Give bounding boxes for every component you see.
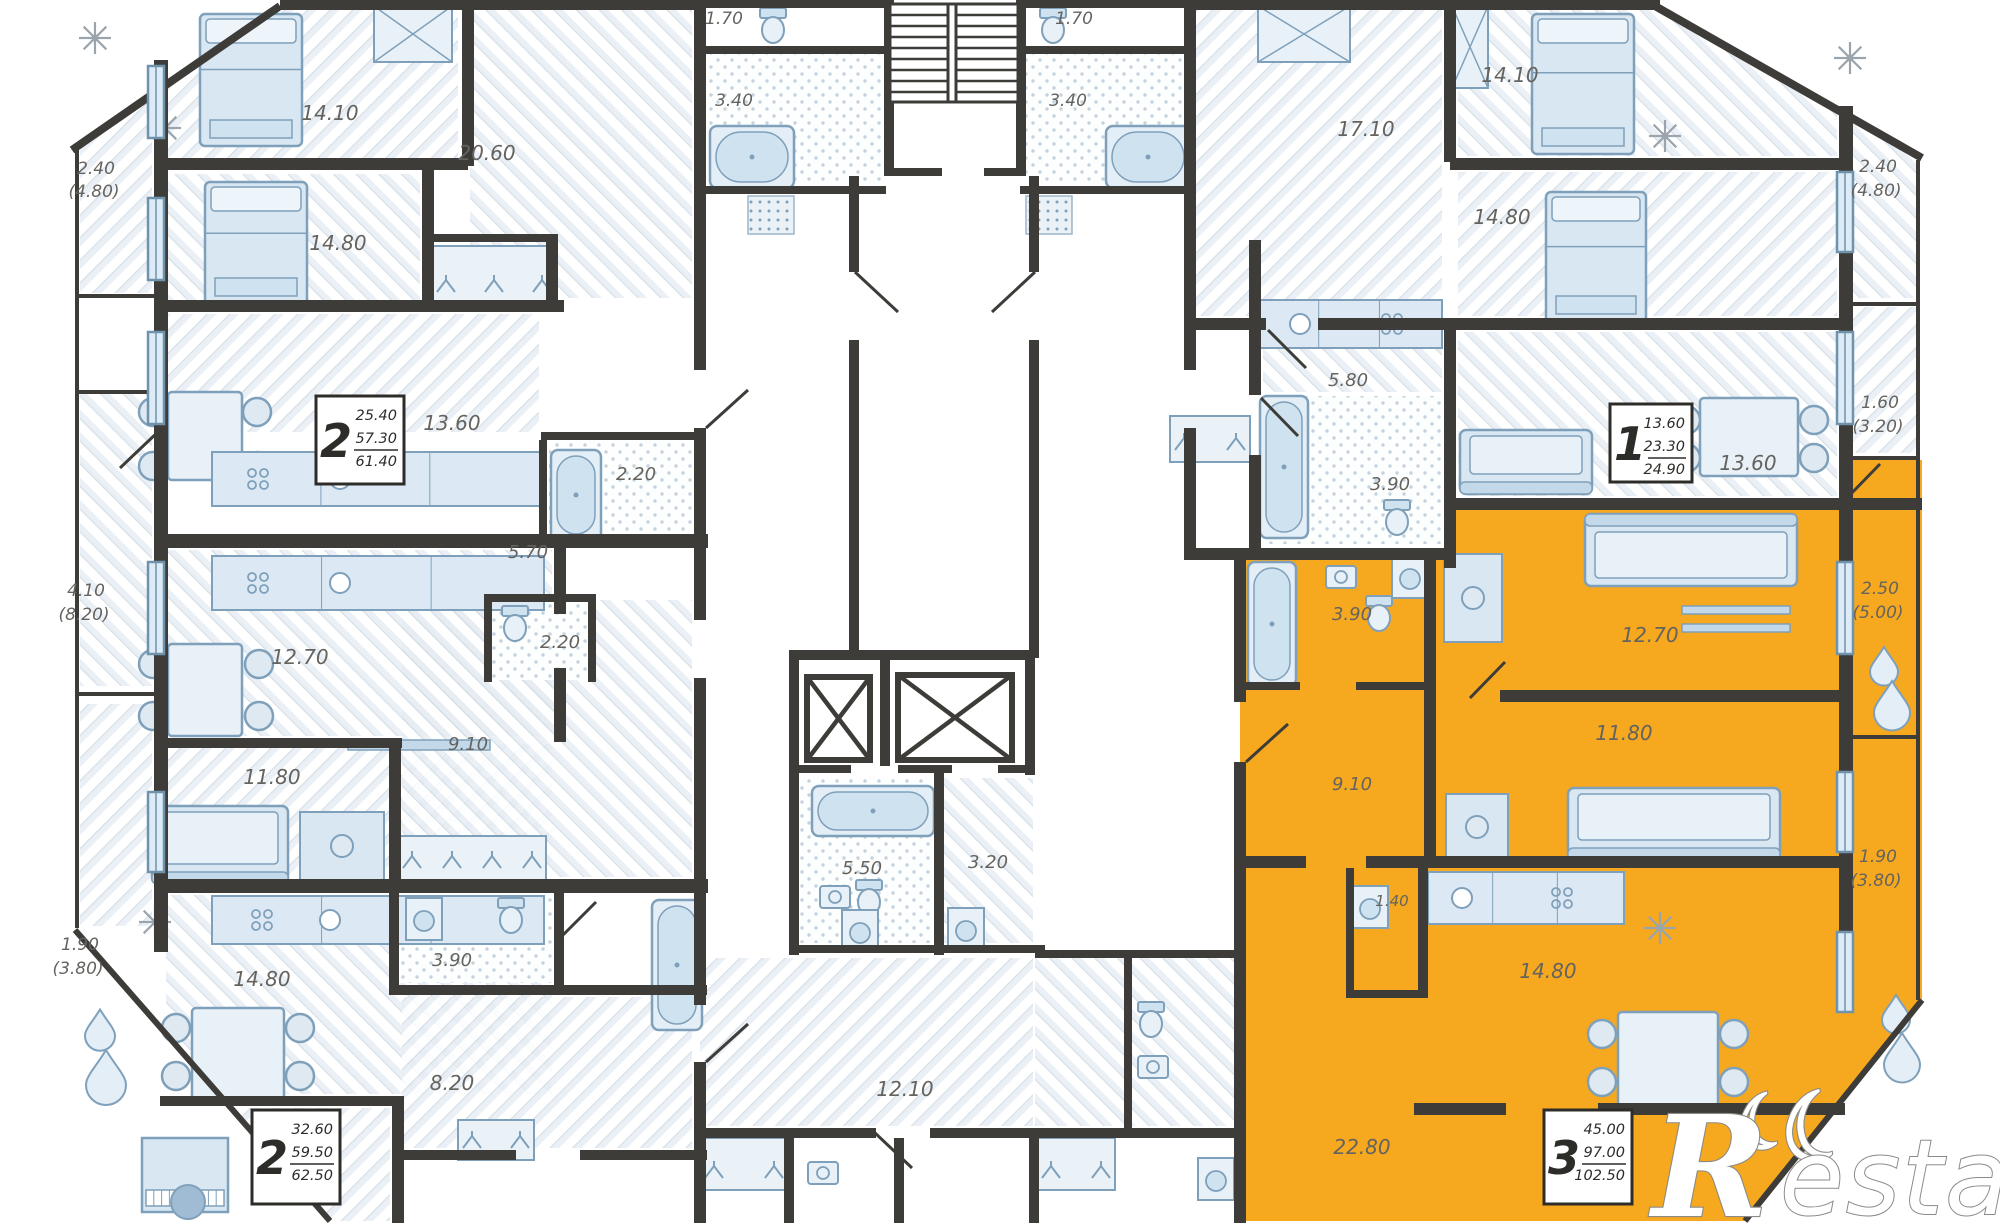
wall-segment <box>694 1062 706 1223</box>
wall-line <box>560 902 596 938</box>
room-dimension-label: 14.80 <box>1519 959 1576 983</box>
chair-icon <box>286 1062 314 1090</box>
room-dimension-label: 3.90 <box>432 950 472 971</box>
badge-room-count: 1 <box>1614 417 1646 471</box>
washbasin-icon <box>808 1162 838 1184</box>
round-table-icon <box>171 1185 205 1219</box>
toilet-icon <box>760 8 786 43</box>
wall-segment <box>934 773 944 955</box>
room-dimension-label: 14.80 <box>309 231 366 255</box>
wall-segment <box>1366 856 1845 868</box>
wall-segment <box>1500 690 1845 702</box>
room-dimension-label: 12.70 <box>271 645 328 669</box>
wall-segment <box>694 880 706 1005</box>
wall-segment <box>554 893 564 993</box>
room-bedroom-14-80-right <box>1458 172 1837 316</box>
room-dimension-label: (3.80) <box>1850 871 1901 891</box>
wall-segment <box>1026 0 1186 8</box>
chair-icon <box>286 1014 314 1042</box>
wall-segment <box>1020 46 1192 54</box>
room-dimension-label: 2.40 <box>77 159 115 179</box>
dining-table-icon <box>168 644 242 736</box>
wall-line <box>874 1132 912 1168</box>
wall-segment <box>389 985 707 995</box>
room-dimension-label: 1.70 <box>1055 9 1093 29</box>
room-dimension-label: (4.80) <box>1850 181 1901 201</box>
badge-area-value: 57.30 <box>355 431 397 447</box>
chair-icon <box>1720 1020 1748 1048</box>
room-dimension-label: 9.10 <box>1332 774 1372 795</box>
wardrobe-shelf-icon <box>1037 1138 1115 1190</box>
wall-segment <box>394 1150 516 1160</box>
wall-segment <box>1318 318 1845 330</box>
room-balcony-4-10-left <box>80 394 152 686</box>
chair-icon <box>243 398 271 426</box>
badge-area-value: 59.50 <box>291 1145 333 1161</box>
badge-room-count: 2 <box>320 414 352 468</box>
elevators <box>807 675 1012 760</box>
wall-segment <box>1240 548 1450 560</box>
room-dimension-label: (3.80) <box>52 959 103 979</box>
wall-segment <box>588 602 596 682</box>
bed-icon <box>1532 14 1634 154</box>
floorplan-drawing: 14.1020.602.40(4.80)14.8013.602.205.704.… <box>0 0 2000 1223</box>
room-dimension-label: 2.20 <box>616 464 656 485</box>
badge-area-value: 25.40 <box>355 408 397 424</box>
elevator-shaft <box>807 677 870 760</box>
room-dimension-label: 3.20 <box>968 852 1008 873</box>
room-dimension-label: 22.80 <box>1333 1135 1390 1159</box>
room-dimension-label: 14.80 <box>233 967 290 991</box>
wall-segment <box>1029 340 1039 658</box>
wardrobe-shelf-icon <box>700 1138 788 1190</box>
room-dimension-label: 5.50 <box>842 858 882 879</box>
sofa-icon <box>1568 788 1780 860</box>
plant-icon <box>1649 120 1681 152</box>
badge-room-count: 2 <box>256 1131 288 1185</box>
room-dimension-label: (4.80) <box>68 182 119 202</box>
wall-segment <box>539 440 547 536</box>
wall-segment <box>160 300 564 312</box>
wall-segment <box>160 738 402 748</box>
apartment-badge-1: 113.6023.3024.90 <box>1610 404 1692 482</box>
room-dimension-label: 14.10 <box>301 101 358 125</box>
wall-segment <box>1450 498 1922 510</box>
wall-segment <box>546 240 558 308</box>
washing-machine-icon <box>406 898 442 940</box>
toilet-icon <box>498 898 524 933</box>
badge-area-value: 62.50 <box>291 1168 333 1184</box>
room-dimension-label: 2.20 <box>540 632 580 653</box>
badge-area-value: 32.60 <box>291 1122 333 1138</box>
wall-segment <box>1346 868 1354 998</box>
room-dimension-label: 3.90 <box>1370 474 1410 495</box>
badge-area-value: 45.00 <box>1583 1122 1625 1138</box>
wardrobe-icon <box>1258 6 1350 62</box>
sofa-icon <box>1460 430 1592 494</box>
sink-icon <box>1452 888 1472 908</box>
room-dimension-label: 12.70 <box>1621 623 1678 647</box>
chair-icon <box>245 650 273 678</box>
room-dimension-label: (8.20) <box>58 605 109 625</box>
room-dimension-label: 5.80 <box>1328 370 1368 391</box>
wall-segment <box>1346 990 1428 998</box>
badge-area-value: 24.90 <box>1643 462 1685 478</box>
wall-segment <box>554 668 566 742</box>
wall-segment <box>1196 318 1266 330</box>
chair-icon <box>245 702 273 730</box>
floorplan-page: 14.1020.602.40(4.80)14.8013.602.205.704.… <box>0 0 2000 1223</box>
plant-icon <box>79 22 111 54</box>
badge-area-value: 13.60 <box>1643 416 1685 432</box>
kitchen-counter-icon <box>1428 872 1624 924</box>
wall-segment <box>694 0 706 370</box>
wardrobe-shelf-icon <box>432 246 556 304</box>
room-dimension-label: 13.60 <box>423 411 480 435</box>
chair-icon <box>1588 1068 1616 1096</box>
wall-segment <box>789 650 1035 660</box>
room-corridor-bottom-right-strip <box>1035 958 1238 1126</box>
chair-icon <box>1800 444 1828 472</box>
wall-segment <box>1029 1128 1244 1138</box>
kitchen-counter-icon <box>212 896 544 944</box>
wall-segment <box>160 534 708 548</box>
wall-segment <box>280 0 706 10</box>
wardrobe-shelf-icon <box>1170 416 1250 462</box>
wall-segment <box>694 678 706 882</box>
room-dimension-label: 11.80 <box>1595 721 1652 745</box>
desk-icon <box>1446 794 1508 860</box>
wall-segment <box>160 158 468 170</box>
room-balcony-1-90-left <box>80 704 152 926</box>
chair-icon <box>162 1062 190 1090</box>
wall-segment <box>789 945 1045 953</box>
bathtub-icon <box>551 450 601 540</box>
wall-segment <box>1184 0 1660 10</box>
wall-segment <box>1414 1103 1506 1115</box>
room-dimension-label: 14.80 <box>1473 205 1530 229</box>
wall-segment <box>160 879 708 893</box>
plan-layers: 14.1020.602.40(4.80)14.8013.602.205.704.… <box>0 0 2000 1223</box>
wall-line <box>992 272 1035 312</box>
room-dimension-label: 8.20 <box>430 1071 475 1095</box>
wall-segment <box>702 0 886 8</box>
sink-icon <box>320 910 340 930</box>
wall-segment <box>694 46 886 54</box>
wall-segment <box>541 432 705 440</box>
room-corridor-12-10 <box>700 958 1033 1126</box>
wall-segment <box>1234 556 1246 702</box>
wall-segment <box>998 765 1035 773</box>
wall-line <box>855 272 898 312</box>
badge-area-value: 61.40 <box>355 454 397 470</box>
wall-segment <box>898 765 952 773</box>
wall-segment <box>160 1096 402 1106</box>
wall-segment <box>554 548 566 614</box>
room-dimension-label: 2.40 <box>1859 157 1897 177</box>
wall-segment <box>1444 0 1456 162</box>
room-dimension-label: 3.40 <box>715 91 753 111</box>
dining-table-icon <box>192 1008 284 1100</box>
wall-segment <box>930 1128 1035 1138</box>
wall-segment <box>1029 176 1039 272</box>
wardrobe-shelf-icon <box>398 836 546 880</box>
desk-icon <box>300 812 384 880</box>
room-dimension-label: 9.10 <box>448 734 488 755</box>
wall-segment <box>484 594 596 602</box>
badge-area-value: 23.30 <box>1643 439 1685 455</box>
plant-icon <box>1644 912 1676 944</box>
wall-segment <box>1184 428 1196 558</box>
bathtub-icon <box>812 786 934 836</box>
room-dimension-label: 1.60 <box>1861 393 1899 413</box>
wall-line <box>706 390 748 428</box>
watermark-text: estate <box>1780 1117 2000 1223</box>
wall-segment <box>789 773 799 955</box>
wall-segment <box>789 650 799 775</box>
wall-segment <box>1025 650 1035 775</box>
chair-icon <box>1800 406 1828 434</box>
bathtub-icon <box>710 126 794 188</box>
wall-segment <box>1240 856 1306 868</box>
shower-mat-icon <box>748 196 794 234</box>
toilet-icon <box>502 606 528 641</box>
wardrobe-icon <box>374 6 452 62</box>
sink-icon <box>1290 314 1310 334</box>
room-dimension-label: (3.20) <box>1852 417 1903 437</box>
wall-segment <box>1184 0 1196 370</box>
wall-segment <box>580 1150 707 1160</box>
bathtub-icon <box>1260 396 1308 538</box>
elevator-shaft <box>898 675 1012 760</box>
wall-segment <box>1234 762 1246 1223</box>
room-dimension-label: 4.10 <box>67 581 105 601</box>
room-dimension-label: 14.10 <box>1481 63 1538 87</box>
bathtub-icon <box>1248 562 1296 686</box>
wall-segment <box>1020 186 1192 194</box>
wall-segment <box>389 742 401 884</box>
wall-segment <box>1029 1138 1039 1223</box>
room-dimension-label: 1.90 <box>61 935 99 955</box>
bathtub-icon <box>1106 126 1190 188</box>
wall-segment <box>1240 682 1300 690</box>
washing-machine-icon <box>1392 556 1428 598</box>
room-dimension-label: 12.10 <box>876 1077 933 1101</box>
washing-machine-icon <box>1198 1158 1234 1200</box>
wall-segment <box>1356 682 1436 690</box>
bed-icon <box>1546 192 1646 322</box>
sofa-icon <box>152 806 288 884</box>
wall-segment <box>484 602 492 682</box>
washbasin-icon <box>1326 566 1356 588</box>
room-dimension-label: 20.60 <box>458 141 515 165</box>
apartment-badge-3: 345.0097.00102.50 <box>1544 1110 1632 1204</box>
apartment-badge-2b: 232.6059.5062.50 <box>252 1110 340 1204</box>
room-dimension-label: 2.50 <box>1861 579 1899 599</box>
wall-segment <box>849 340 859 658</box>
room-dimension-label: 1.70 <box>705 9 743 29</box>
badge-area-value: 97.00 <box>1583 1145 1625 1161</box>
sofa-icon <box>1585 514 1797 586</box>
wall-segment <box>1124 952 1132 1130</box>
wall-segment <box>1424 556 1436 866</box>
plant-icon <box>1834 42 1866 74</box>
wall-segment <box>880 658 890 766</box>
wall-segment <box>849 176 859 272</box>
watermark-initial: R <box>1648 1086 1768 1223</box>
toilet-icon <box>1138 1002 1164 1037</box>
wall-segment <box>1450 158 1845 170</box>
wall-segment <box>428 234 558 242</box>
room-dimension-label: 1.90 <box>1859 847 1897 867</box>
staircase <box>890 4 1018 102</box>
washbasin-icon <box>820 886 850 908</box>
room-dimension-label: 1.40 <box>1375 892 1408 910</box>
washing-machine-icon <box>948 908 984 950</box>
wall-segment <box>694 1128 876 1138</box>
wall-segment <box>694 428 706 620</box>
room-dimension-label: 13.60 <box>1719 451 1776 475</box>
wall-segment <box>1035 950 1245 958</box>
room-dimension-label: 3.90 <box>1332 604 1372 625</box>
bed-icon <box>200 14 302 146</box>
room-dimension-label: (5.00) <box>1852 603 1903 623</box>
room-dimension-label: 3.40 <box>1049 91 1087 111</box>
badge-area-value: 102.50 <box>1574 1168 1625 1184</box>
stair-stringer <box>948 4 956 102</box>
room-dimension-label: 5.70 <box>508 542 548 563</box>
wall-segment <box>1249 455 1261 555</box>
bed-icon <box>205 182 307 304</box>
wall-segment <box>1249 240 1261 395</box>
wall-segment <box>789 765 851 773</box>
wall-segment <box>784 1138 794 1223</box>
wall-segment <box>984 168 1026 176</box>
wall-segment <box>1444 330 1456 510</box>
sink-icon <box>330 573 350 593</box>
washbasin-icon <box>1138 1056 1168 1078</box>
wall-segment <box>389 893 399 993</box>
room-dimension-label: 11.80 <box>243 765 300 789</box>
chair-icon <box>1588 1020 1616 1048</box>
room-dimension-label: 17.10 <box>1337 117 1394 141</box>
wall-segment <box>1418 868 1428 998</box>
toilet-icon <box>1384 500 1410 535</box>
apartment-badge-2a: 225.4057.3061.40 <box>316 396 404 484</box>
wall-segment <box>884 168 942 176</box>
